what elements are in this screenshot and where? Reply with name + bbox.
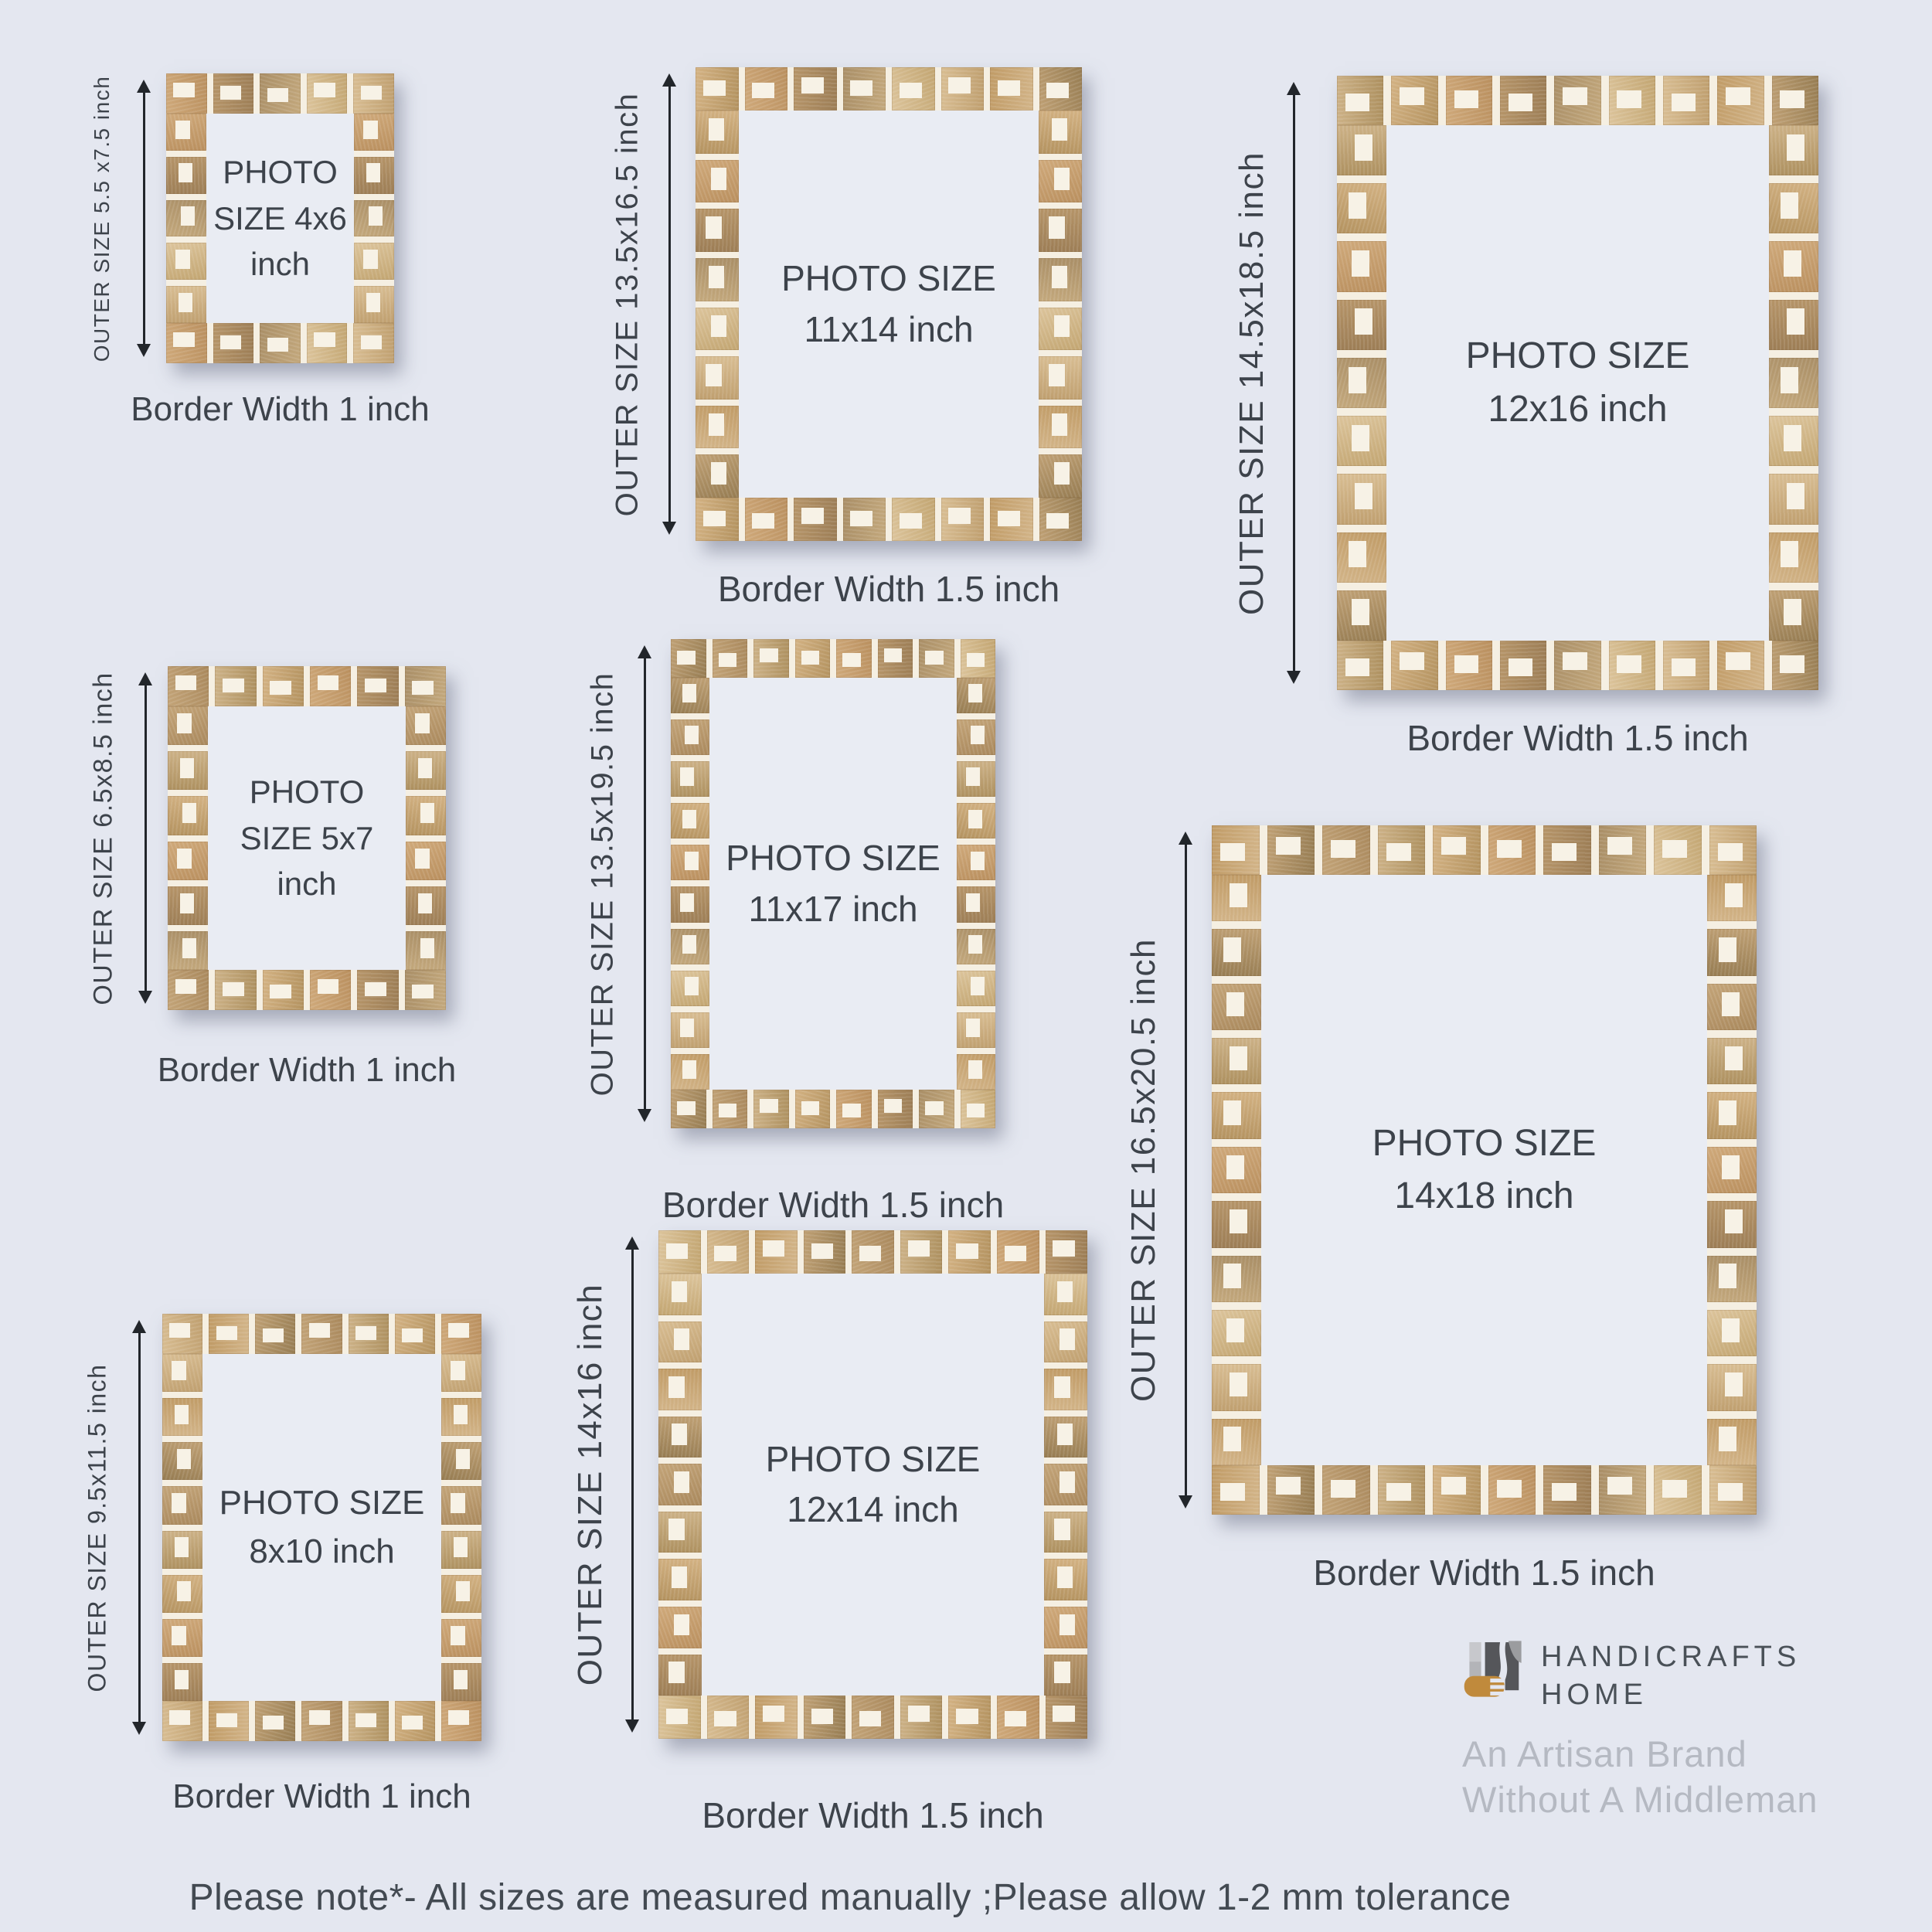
bone-inset bbox=[1220, 1483, 1245, 1501]
inlay-tile bbox=[1554, 76, 1600, 125]
dimension-line bbox=[145, 682, 147, 994]
inlay-tile bbox=[961, 1090, 996, 1128]
bone-inset bbox=[1781, 541, 1798, 567]
outer-size-label: OUTER SIZE 14.5x18.5 inch bbox=[1233, 151, 1271, 615]
bone-inset bbox=[220, 86, 241, 100]
outer-size-label: OUTER SIZE 13.5x19.5 inch bbox=[586, 672, 621, 1096]
inlay-tile bbox=[1717, 76, 1764, 125]
inlay-tile bbox=[168, 931, 208, 970]
photo-size-label: PHOTO SIZE bbox=[726, 833, 940, 883]
bone-inset bbox=[182, 938, 197, 958]
bone-inset bbox=[1054, 315, 1070, 338]
inlay-tile bbox=[707, 1230, 750, 1274]
photo-size-label: PHOTO SIZE bbox=[1466, 330, 1690, 383]
border-width-label: Border Width 1 inch bbox=[90, 1777, 554, 1816]
bone-inset bbox=[719, 1104, 737, 1117]
inlay-tile bbox=[405, 970, 446, 1010]
bone-inset bbox=[173, 332, 194, 347]
inlay-tile bbox=[1663, 76, 1709, 125]
inlay-tile bbox=[1044, 1607, 1087, 1648]
bone-inset bbox=[355, 1713, 376, 1728]
border-width-label: Border Width 1 inch bbox=[75, 1051, 539, 1090]
bone-inset bbox=[685, 852, 699, 870]
photo-size-label: PHOTO SIZE bbox=[1372, 1117, 1597, 1170]
inlay-tile bbox=[671, 1054, 709, 1090]
inlay-tile bbox=[310, 970, 351, 1010]
bone-inset bbox=[1563, 652, 1587, 670]
inlay-tile bbox=[209, 1314, 249, 1354]
inlay-tile bbox=[1769, 300, 1818, 350]
bone-inset bbox=[179, 293, 193, 312]
bone-inset bbox=[968, 810, 982, 828]
bone-inset bbox=[1563, 87, 1587, 105]
inlay-tile bbox=[990, 67, 1033, 111]
bone-inset bbox=[1780, 90, 1804, 108]
bone-inset bbox=[1057, 1423, 1073, 1445]
inlay-tile bbox=[836, 639, 872, 678]
dimension-arrow-icon bbox=[624, 1236, 640, 1733]
inlay-tile bbox=[1212, 1201, 1261, 1247]
bone-inset bbox=[706, 216, 721, 239]
bone-inset bbox=[1005, 1246, 1026, 1261]
arrow-down-icon bbox=[138, 991, 152, 1004]
bone-inset bbox=[674, 1614, 689, 1636]
inlay-tile bbox=[1044, 1417, 1087, 1458]
inlay-tile bbox=[1212, 1092, 1261, 1138]
frame-border-strip bbox=[1212, 825, 1757, 875]
bone-inset bbox=[318, 979, 339, 994]
inlay-tile bbox=[1039, 67, 1083, 111]
inlay-tile bbox=[349, 1701, 389, 1741]
bone-inset bbox=[1052, 266, 1067, 288]
bone-inset bbox=[1046, 83, 1069, 98]
bone-inset bbox=[418, 893, 433, 913]
bone-inset bbox=[1441, 1477, 1466, 1495]
inlay-tile bbox=[671, 971, 709, 1006]
inlay-tile bbox=[1039, 356, 1082, 400]
inlay-tile bbox=[307, 73, 348, 114]
bone-inset bbox=[1060, 1328, 1075, 1350]
bone-inset bbox=[412, 681, 434, 696]
frame-border-strip bbox=[162, 1354, 202, 1701]
bone-inset bbox=[1497, 1480, 1522, 1498]
bone-inset bbox=[672, 1281, 687, 1303]
inlay-tile bbox=[892, 498, 935, 541]
bone-inset bbox=[1046, 513, 1069, 529]
bone-inset bbox=[966, 1019, 980, 1037]
photo-size-label: inch bbox=[250, 241, 310, 287]
inlay-tile bbox=[1769, 416, 1818, 466]
bone-inset bbox=[1060, 1614, 1075, 1636]
frame-border-strip bbox=[1769, 125, 1818, 641]
inlay-tile bbox=[263, 970, 304, 1010]
bone-inset bbox=[181, 206, 196, 226]
inlay-tile bbox=[1212, 929, 1261, 975]
bone-inset bbox=[968, 1060, 982, 1079]
bone-inset bbox=[719, 653, 737, 667]
bone-inset bbox=[175, 675, 197, 690]
inlay-tile bbox=[1337, 76, 1383, 125]
bone-inset bbox=[1331, 1480, 1355, 1498]
inlay-tile bbox=[1709, 1465, 1757, 1515]
inlay-tile bbox=[255, 1701, 295, 1741]
bone-inset bbox=[968, 935, 982, 954]
inlay-tile bbox=[260, 73, 301, 114]
bone-inset bbox=[177, 1449, 192, 1469]
bone-inset bbox=[1552, 843, 1577, 861]
inlay-tile bbox=[836, 1090, 872, 1128]
bone-inset bbox=[179, 163, 193, 182]
bone-inset bbox=[1331, 840, 1355, 858]
frame-border-strip bbox=[1039, 111, 1082, 498]
bone-inset bbox=[1726, 87, 1750, 105]
inlay-tile bbox=[1707, 875, 1757, 921]
bone-inset bbox=[971, 852, 985, 870]
inlay-tile bbox=[1707, 984, 1757, 1030]
frame-border-strip bbox=[354, 114, 394, 323]
inlay-tile bbox=[696, 308, 739, 351]
inlay-tile bbox=[1707, 1310, 1757, 1356]
inlay-tile bbox=[1707, 1038, 1757, 1084]
bone-inset bbox=[1509, 658, 1532, 676]
inlay-tile bbox=[1707, 929, 1757, 975]
arrow-up-icon bbox=[137, 80, 151, 93]
bone-inset bbox=[1349, 541, 1366, 567]
dimension-line bbox=[668, 83, 671, 525]
photo-size-label: SIZE 5x7 bbox=[240, 815, 374, 862]
bone-inset bbox=[760, 648, 778, 662]
arrow-up-icon bbox=[138, 672, 152, 685]
inlay-tile bbox=[843, 498, 886, 541]
bone-inset bbox=[1726, 652, 1750, 670]
inlay-tile bbox=[713, 639, 748, 678]
bone-inset bbox=[948, 508, 971, 523]
inlay-tile bbox=[892, 67, 935, 111]
inlay-tile bbox=[1769, 183, 1818, 233]
inlay-tile bbox=[357, 666, 398, 706]
inlay-tile bbox=[1337, 532, 1386, 583]
bone-inset bbox=[801, 651, 820, 665]
inlay-tile bbox=[168, 886, 208, 925]
inlay-tile bbox=[395, 1314, 435, 1354]
bone-inset bbox=[366, 163, 381, 182]
inlay-tile bbox=[753, 1090, 789, 1128]
frame-border-strip bbox=[406, 706, 446, 970]
inlay-tile bbox=[406, 706, 446, 745]
dimension-line bbox=[631, 1247, 634, 1723]
bone-inset bbox=[967, 653, 985, 667]
inlay-tile bbox=[957, 761, 995, 797]
inlay-tile bbox=[671, 803, 709, 838]
inlay-tile bbox=[804, 1696, 846, 1739]
inlay-tile bbox=[1599, 1465, 1647, 1515]
outer-size-label: OUTER SIZE 5.5 x7.5 inch bbox=[90, 75, 114, 362]
bone-inset bbox=[674, 1471, 689, 1493]
bone-inset bbox=[968, 684, 982, 702]
bone-inset bbox=[859, 1246, 881, 1261]
bone-inset bbox=[418, 758, 433, 778]
bone-inset bbox=[448, 1710, 469, 1725]
inlay-tile bbox=[354, 114, 394, 151]
bone-inset bbox=[1617, 90, 1641, 108]
inlay-tile bbox=[795, 639, 831, 678]
bone-inset bbox=[182, 803, 197, 823]
arrow-up-icon bbox=[638, 645, 651, 658]
inlay-tile bbox=[1337, 641, 1383, 690]
bone-inset bbox=[763, 1240, 784, 1256]
bone-inset bbox=[842, 1104, 861, 1117]
inlay-tile bbox=[162, 1575, 202, 1613]
photo-size-label: PHOTO SIZE bbox=[766, 1434, 981, 1485]
bone-inset bbox=[1226, 1155, 1244, 1179]
bone-inset bbox=[672, 1566, 687, 1588]
bone-inset bbox=[1725, 1046, 1743, 1070]
bone-inset bbox=[1052, 118, 1067, 141]
inlay-tile bbox=[1212, 1364, 1261, 1410]
inlay-tile bbox=[406, 796, 446, 835]
inlay-tile bbox=[168, 706, 208, 745]
bone-inset bbox=[801, 77, 824, 93]
bone-inset bbox=[1223, 937, 1241, 961]
bone-inset bbox=[752, 83, 774, 98]
bone-inset bbox=[1722, 1155, 1740, 1179]
inlay-tile bbox=[900, 1696, 943, 1739]
brand-tagline: An Artisan Brand Without A Middleman bbox=[1462, 1731, 1818, 1822]
bone-inset bbox=[1355, 483, 1372, 509]
inlay-tile bbox=[1322, 1465, 1370, 1515]
inlay-tile bbox=[406, 751, 446, 790]
inlay-tile bbox=[166, 157, 206, 194]
bone-inset bbox=[1454, 90, 1478, 108]
bone-inset bbox=[263, 1716, 284, 1730]
inlay-tile bbox=[168, 970, 209, 1010]
outer-size-label: OUTER SIZE 14x16 inch bbox=[571, 1284, 610, 1686]
inlay-tile bbox=[1707, 1419, 1757, 1465]
bone-inset bbox=[677, 651, 696, 665]
inlay-tile bbox=[168, 666, 209, 706]
arrow-down-icon bbox=[1287, 671, 1301, 684]
frame-border-strip bbox=[957, 678, 995, 1090]
bone-inset bbox=[1662, 1480, 1687, 1498]
arrow-down-icon bbox=[1179, 1495, 1192, 1509]
inlay-tile bbox=[162, 1314, 202, 1354]
inlay-tile bbox=[354, 243, 394, 280]
frame-border-strip bbox=[162, 1701, 481, 1741]
inlay-tile bbox=[671, 1012, 709, 1048]
bone-inset bbox=[1719, 1100, 1736, 1124]
inlay-tile bbox=[1044, 1464, 1087, 1505]
bone-inset bbox=[1454, 655, 1478, 673]
photo-size-label: PHOTO bbox=[223, 149, 338, 196]
inlay-tile bbox=[1212, 1038, 1261, 1084]
inlay-tile bbox=[1609, 76, 1655, 125]
bone-inset bbox=[1722, 1318, 1740, 1342]
bone-inset bbox=[451, 1361, 465, 1381]
photo-frame: PHOTO SIZE14x18 inch bbox=[1212, 825, 1757, 1515]
bone-inset bbox=[709, 413, 724, 436]
inlay-tile bbox=[745, 67, 788, 111]
bone-inset bbox=[711, 462, 726, 485]
bone-inset bbox=[1787, 134, 1804, 161]
bone-inset bbox=[1497, 840, 1522, 858]
bone-inset bbox=[811, 1243, 833, 1259]
inlay-tile bbox=[162, 1701, 202, 1741]
bone-inset bbox=[1052, 413, 1067, 436]
frame-border-strip bbox=[696, 67, 1082, 111]
inlay-tile bbox=[1046, 1696, 1088, 1739]
inlay-tile bbox=[441, 1531, 481, 1569]
bone-inset bbox=[668, 1376, 684, 1398]
bone-inset bbox=[666, 1709, 688, 1724]
inlay-tile bbox=[441, 1663, 481, 1701]
bone-inset bbox=[908, 1240, 930, 1256]
bone-inset bbox=[314, 83, 335, 97]
inlay-tile bbox=[162, 1531, 202, 1569]
inlay-tile bbox=[671, 929, 709, 964]
arrow-down-icon bbox=[638, 1109, 651, 1122]
bone-inset bbox=[177, 849, 192, 869]
inlay-tile bbox=[1039, 406, 1082, 449]
inlay-tile bbox=[1707, 1147, 1757, 1193]
bone-inset bbox=[267, 88, 288, 103]
bone-inset bbox=[925, 651, 944, 665]
bone-inset bbox=[363, 250, 378, 269]
bone-inset bbox=[180, 893, 195, 913]
inlay-tile bbox=[1707, 1364, 1757, 1410]
inlay-tile bbox=[671, 845, 709, 880]
bone-inset bbox=[365, 679, 386, 693]
inlay-tile bbox=[1039, 454, 1082, 498]
bone-inset bbox=[966, 767, 980, 786]
inlay-tile bbox=[794, 67, 837, 111]
bone-inset bbox=[402, 1328, 423, 1343]
brand-tagline-line2: Without A Middleman bbox=[1462, 1777, 1818, 1822]
bone-inset bbox=[1607, 837, 1632, 855]
bone-inset bbox=[1349, 192, 1366, 219]
inlay-tile bbox=[794, 498, 837, 541]
inlay-tile bbox=[1337, 474, 1386, 524]
bone-inset bbox=[685, 726, 699, 744]
bone-inset bbox=[402, 1716, 423, 1730]
bone-inset bbox=[801, 1101, 820, 1115]
bone-inset bbox=[314, 332, 335, 347]
inlay-tile bbox=[441, 1314, 481, 1354]
bone-inset bbox=[703, 511, 726, 526]
inlay-tile bbox=[1772, 641, 1818, 690]
bone-inset bbox=[680, 893, 694, 912]
inlay-tile bbox=[1663, 641, 1709, 690]
photo-size-label: SIZE 4x6 bbox=[213, 196, 347, 242]
bone-inset bbox=[220, 335, 241, 350]
inlay-tile bbox=[213, 323, 254, 363]
frame-border-strip bbox=[696, 111, 739, 498]
inlay-tile bbox=[1488, 1465, 1536, 1515]
bone-inset bbox=[811, 1709, 833, 1724]
inlay-tile bbox=[1039, 498, 1083, 541]
bone-inset bbox=[1552, 1483, 1577, 1501]
inlay-tile bbox=[1212, 1310, 1261, 1356]
inlay-tile bbox=[1044, 1655, 1087, 1696]
bone-inset bbox=[175, 121, 190, 140]
inlay-tile bbox=[406, 931, 446, 970]
inlay-tile bbox=[957, 719, 995, 755]
inlay-tile bbox=[1543, 825, 1591, 875]
bone-inset bbox=[680, 1019, 694, 1037]
inlay-tile bbox=[263, 666, 304, 706]
bone-inset bbox=[1060, 1471, 1075, 1493]
bone-inset bbox=[456, 1581, 471, 1601]
inlay-tile bbox=[957, 1054, 995, 1090]
inlay-tile bbox=[441, 1619, 481, 1657]
border-width-label: Border Width 1.5 inch bbox=[657, 568, 1121, 610]
inlay-tile bbox=[353, 323, 394, 363]
inlay-tile bbox=[406, 886, 446, 925]
bone-inset bbox=[703, 80, 726, 96]
inlay-tile bbox=[900, 1230, 943, 1274]
bone-inset bbox=[172, 1361, 186, 1381]
inlay-tile bbox=[1488, 825, 1536, 875]
inlay-tile bbox=[1707, 1092, 1757, 1138]
bone-inset bbox=[1352, 250, 1369, 277]
inlay-tile bbox=[713, 1090, 748, 1128]
inlay-tile bbox=[1769, 532, 1818, 583]
inlay-tile bbox=[209, 1701, 249, 1741]
bone-inset bbox=[1509, 94, 1532, 111]
photo-size-label: inch bbox=[277, 861, 336, 907]
inlay-tile bbox=[301, 1314, 342, 1354]
border-width-label: Border Width 1.5 inch bbox=[641, 1794, 1105, 1836]
inlay-tile bbox=[1707, 1201, 1757, 1247]
outer-size-label: OUTER SIZE 16.5x20.5 inch bbox=[1124, 938, 1163, 1402]
inlay-tile bbox=[354, 200, 394, 237]
bone-inset bbox=[267, 338, 288, 352]
brand-tagline-line1: An Artisan Brand bbox=[1462, 1731, 1818, 1777]
bone-inset bbox=[1223, 1427, 1241, 1451]
bone-inset bbox=[180, 758, 195, 778]
inlay-tile bbox=[1212, 1147, 1261, 1193]
bone-inset bbox=[1400, 652, 1423, 670]
inlay-tile bbox=[696, 67, 739, 111]
outer-size-label: OUTER SIZE 13.5x16.5 inch bbox=[611, 92, 645, 516]
inlay-tile bbox=[1212, 984, 1261, 1030]
inlay-tile bbox=[1039, 209, 1082, 252]
bone-inset bbox=[1054, 1519, 1070, 1540]
border-width-label: Border Width 1.5 inch bbox=[601, 1184, 1065, 1226]
inlay-tile bbox=[162, 1663, 202, 1701]
inlay-tile bbox=[1039, 308, 1082, 351]
inlay-tile bbox=[168, 842, 208, 880]
inlay-tile bbox=[957, 845, 995, 880]
bone-inset bbox=[680, 767, 694, 786]
bone-inset bbox=[172, 1626, 186, 1646]
inlay-tile bbox=[941, 67, 985, 111]
inlay-tile bbox=[168, 796, 208, 835]
photo-size-label: PHOTO SIZE bbox=[219, 1479, 425, 1527]
bone-inset bbox=[451, 1493, 465, 1513]
bone-inset bbox=[223, 679, 244, 693]
inlay-tile bbox=[957, 971, 995, 1006]
inlay-tile bbox=[1769, 590, 1818, 641]
bone-inset bbox=[677, 1101, 696, 1115]
bone-inset bbox=[850, 511, 872, 526]
inlay-tile bbox=[745, 498, 788, 541]
photo-window: PHOTO SIZE11x17 inch bbox=[709, 678, 957, 1090]
inlay-tile bbox=[753, 639, 789, 678]
bone-inset bbox=[1057, 1566, 1073, 1588]
inlay-tile bbox=[696, 258, 739, 301]
border-width-label: Border Width 1.5 inch bbox=[1253, 1552, 1716, 1594]
inlay-tile bbox=[878, 639, 913, 678]
